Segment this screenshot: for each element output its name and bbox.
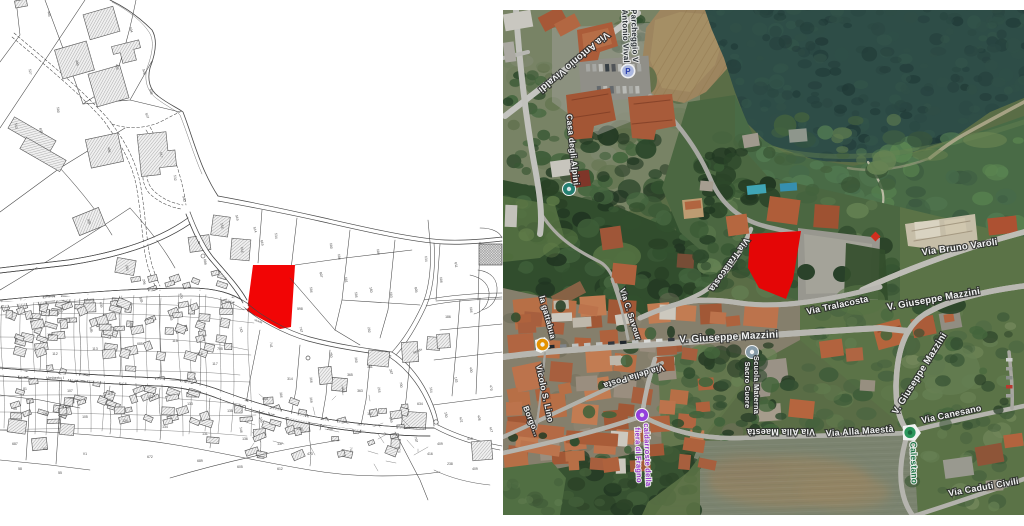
svg-text:294: 294 [125, 265, 129, 271]
svg-text:634: 634 [417, 402, 423, 406]
svg-text:164: 164 [429, 387, 433, 393]
svg-text:705: 705 [217, 347, 223, 351]
svg-text:596: 596 [309, 287, 313, 293]
svg-text:136: 136 [242, 437, 248, 441]
svg-text:601: 601 [344, 277, 348, 283]
svg-text:135: 135 [227, 409, 233, 413]
svg-text:124: 124 [122, 419, 128, 423]
svg-text:685: 685 [137, 342, 143, 346]
svg-text:360: 360 [354, 357, 358, 363]
svg-text:58: 58 [18, 467, 22, 471]
svg-text:110: 110 [107, 392, 113, 396]
svg-text:532: 532 [173, 175, 177, 181]
svg-text:609: 609 [376, 249, 380, 255]
svg-text:616: 616 [240, 247, 244, 253]
svg-text:605: 605 [237, 465, 243, 469]
svg-text:365: 365 [347, 373, 353, 377]
svg-text:527: 527 [28, 69, 32, 75]
svg-text:513: 513 [14, 123, 18, 129]
svg-text:314: 314 [287, 377, 293, 381]
svg-text:415: 415 [467, 437, 473, 441]
svg-text:595: 595 [354, 292, 358, 298]
svg-text:416: 416 [427, 452, 433, 456]
svg-text:617: 617 [159, 152, 163, 158]
svg-text:409: 409 [437, 442, 443, 446]
svg-text:158: 158 [47, 333, 53, 337]
svg-text:687: 687 [12, 442, 18, 446]
svg-text:464: 464 [262, 397, 268, 401]
svg-text:474: 474 [397, 447, 401, 453]
svg-text:689: 689 [197, 459, 203, 463]
svg-text:741: 741 [269, 342, 273, 348]
svg-text:603: 603 [389, 292, 393, 298]
svg-text:116: 116 [197, 352, 203, 356]
svg-text:460: 460 [29, 317, 33, 323]
svg-text:256: 256 [327, 427, 333, 431]
svg-text:102: 102 [42, 447, 48, 451]
svg-text:115: 115 [172, 339, 178, 343]
svg-text:369: 369 [309, 397, 313, 403]
svg-text:364: 364 [341, 387, 345, 393]
svg-text:409: 409 [472, 467, 478, 471]
svg-text:81: 81 [23, 387, 27, 391]
svg-text:306: 306 [279, 392, 283, 398]
svg-text:95: 95 [13, 407, 17, 411]
svg-text:600: 600 [329, 243, 333, 249]
svg-text:606: 606 [469, 307, 473, 313]
svg-text:55: 55 [58, 471, 62, 475]
svg-text:473: 473 [307, 452, 313, 456]
svg-text:112: 112 [52, 352, 58, 356]
svg-text:598: 598 [297, 307, 303, 311]
svg-text:156: 156 [220, 223, 224, 229]
svg-text:250: 250 [297, 427, 303, 431]
svg-text:131: 131 [202, 432, 208, 436]
svg-text:099: 099 [203, 259, 207, 265]
svg-text:672: 672 [147, 455, 153, 459]
svg-text:747: 747 [349, 447, 353, 453]
svg-text:133: 133 [187, 402, 193, 406]
svg-text:V1: V1 [83, 452, 87, 456]
svg-text:157: 157 [367, 412, 373, 416]
svg-text:698: 698 [337, 254, 341, 260]
svg-text:470: 470 [489, 385, 493, 391]
svg-text:608: 608 [439, 277, 443, 283]
svg-text:136: 136 [42, 412, 48, 416]
svg-text:105: 105 [82, 415, 88, 419]
svg-text:612: 612 [277, 467, 283, 471]
svg-text:500: 500 [56, 107, 60, 113]
svg-text:134: 134 [162, 425, 168, 429]
svg-text:113: 113 [92, 347, 98, 351]
svg-text:265: 265 [377, 387, 381, 393]
svg-text:238: 238 [447, 462, 453, 466]
svg-text:Umberto I: Umberto I [46, 375, 64, 380]
svg-text:107: 107 [67, 389, 73, 393]
svg-text:148: 148 [239, 427, 243, 433]
svg-text:186: 186 [445, 315, 451, 319]
svg-text:132: 132 [147, 395, 153, 399]
svg-text:534: 534 [274, 233, 278, 239]
svg-text:368: 368 [309, 377, 313, 383]
svg-text:634: 634 [424, 256, 428, 262]
svg-text:117: 117 [212, 362, 218, 366]
svg-text:361: 361 [367, 365, 373, 369]
svg-text:363: 363 [357, 389, 363, 393]
svg-text:292: 292 [367, 327, 371, 333]
svg-text:137: 137 [277, 442, 283, 446]
